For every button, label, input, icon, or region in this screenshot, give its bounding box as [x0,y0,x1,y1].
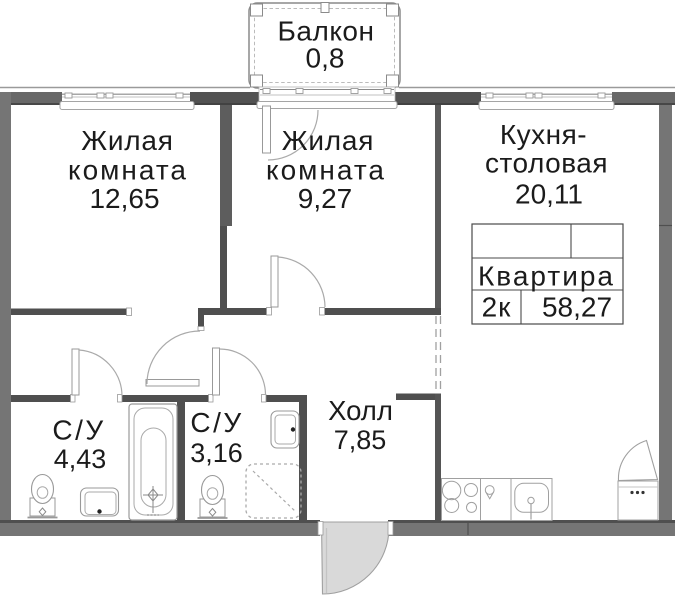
svg-text:Жилая: Жилая [282,125,375,156]
svg-text:58,27: 58,27 [542,292,612,323]
svg-text:2к: 2к [482,292,512,323]
svg-text:20,11: 20,11 [515,179,583,210]
svg-text:комната: комната [266,155,386,186]
svg-text:С/У: С/У [52,415,105,446]
svg-text:Жилая: Жилая [81,125,174,156]
svg-text:Кухня-: Кухня- [500,119,587,150]
svg-text:Квартира: Квартира [478,261,615,292]
svg-text:9,27: 9,27 [298,183,353,214]
svg-text:комната: комната [68,155,188,186]
svg-text:Холл: Холл [328,395,393,426]
svg-text:3,16: 3,16 [190,438,243,468]
svg-text:4,43: 4,43 [54,444,107,474]
svg-text:12,65: 12,65 [89,183,159,214]
svg-text:С/У: С/У [190,407,243,438]
svg-text:0,8: 0,8 [306,43,345,74]
svg-text:7,85: 7,85 [334,425,387,455]
svg-text:столовая: столовая [485,148,608,179]
